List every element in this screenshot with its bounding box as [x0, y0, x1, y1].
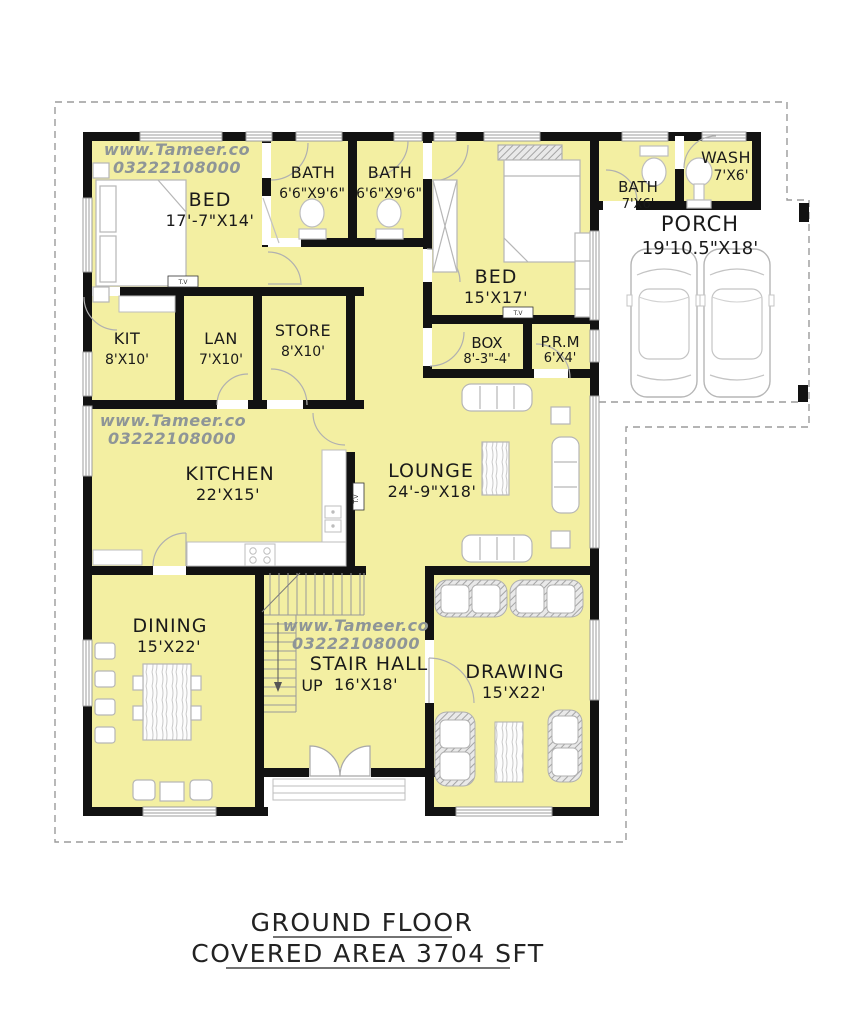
- label-bath2-name: BATH: [368, 163, 412, 182]
- watermark-site-1: www.Tameer.co: [104, 140, 250, 159]
- porch-car-left: [627, 249, 701, 397]
- title-line2: COVERED AREA 3704 SFT: [191, 939, 544, 968]
- label-kit-name: KIT: [114, 329, 140, 348]
- bath1-toilet-icon: [299, 199, 326, 239]
- label-porch-dims: 19'10.5"X18': [642, 238, 758, 259]
- watermark-phone-1: 03222108000: [113, 158, 241, 177]
- floor-plan-page: T.V T.V T.V: [0, 0, 858, 1024]
- bath2-toilet-icon: [376, 199, 403, 239]
- label-bed1-name: BED: [189, 189, 232, 211]
- label-dining-dims: 15'X22': [137, 637, 201, 656]
- porch-car-right: [700, 249, 774, 397]
- label-bed2-dims: 15'X17': [464, 288, 528, 307]
- kit-counter: [119, 296, 175, 312]
- entrance-steps: [273, 779, 405, 800]
- label-drawing-name: DRAWING: [465, 661, 564, 683]
- label-kit-dims: 8'X10': [105, 352, 149, 368]
- watermark-site-3: www.Tameer.co: [283, 616, 429, 635]
- label-box-dims: 8'-3"-4': [463, 352, 510, 367]
- label-bath2-dims: 6'6"X9'6": [356, 186, 422, 202]
- label-wash-dims: 7'X6': [713, 168, 748, 184]
- watermark-site-2: www.Tameer.co: [100, 411, 246, 430]
- label-prm-dims: 6'X4': [544, 351, 577, 366]
- label-lan-dims: 7'X10': [199, 352, 243, 368]
- label-kitchen-dims: 22'X15': [196, 485, 260, 504]
- tv-label-lounge: T.V: [353, 494, 360, 505]
- label-kitchen-name: KITCHEN: [185, 463, 274, 485]
- label-box-name: BOX: [471, 334, 502, 352]
- title-line1: GROUND FLOOR: [251, 908, 474, 937]
- label-stair-hall-name: STAIR HALL: [310, 653, 429, 675]
- label-drawing-dims: 15'X22': [482, 683, 546, 702]
- label-prm-name: P.R.M: [540, 333, 579, 351]
- label-bath3-name: BATH: [618, 178, 658, 196]
- label-lounge-name: LOUNGE: [388, 460, 474, 482]
- title-block: GROUND FLOOR COVERED AREA 3704 SFT: [191, 908, 544, 968]
- label-bed2-name: BED: [475, 266, 518, 288]
- tv-label-bed2: T.V: [513, 310, 524, 317]
- floor-plan-canvas: T.V T.V T.V: [0, 0, 858, 1024]
- watermark-phone-2: 03222108000: [108, 429, 236, 448]
- label-store-name: STORE: [275, 321, 331, 340]
- label-dining-name: DINING: [133, 615, 208, 637]
- label-lounge-dims: 24'-9"X18': [388, 482, 477, 501]
- label-store-dims: 8'X10': [281, 344, 325, 360]
- label-bath3-dims: 7'X6': [622, 197, 655, 212]
- label-up: UP: [301, 676, 323, 695]
- tv-label-bed1: T.V: [178, 279, 189, 286]
- watermark-phone-3: 03222108000: [292, 634, 420, 653]
- label-bath1-name: BATH: [291, 163, 335, 182]
- label-wash-name: WASH: [701, 148, 751, 167]
- label-stair-hall-dims: 16'X18': [334, 675, 398, 694]
- label-lan-name: LAN: [204, 329, 238, 348]
- label-bed1-dims: 17'-7"X14': [166, 211, 255, 230]
- label-bath1-dims: 6'6"X9'6": [279, 186, 345, 202]
- label-porch-name: PORCH: [661, 212, 739, 236]
